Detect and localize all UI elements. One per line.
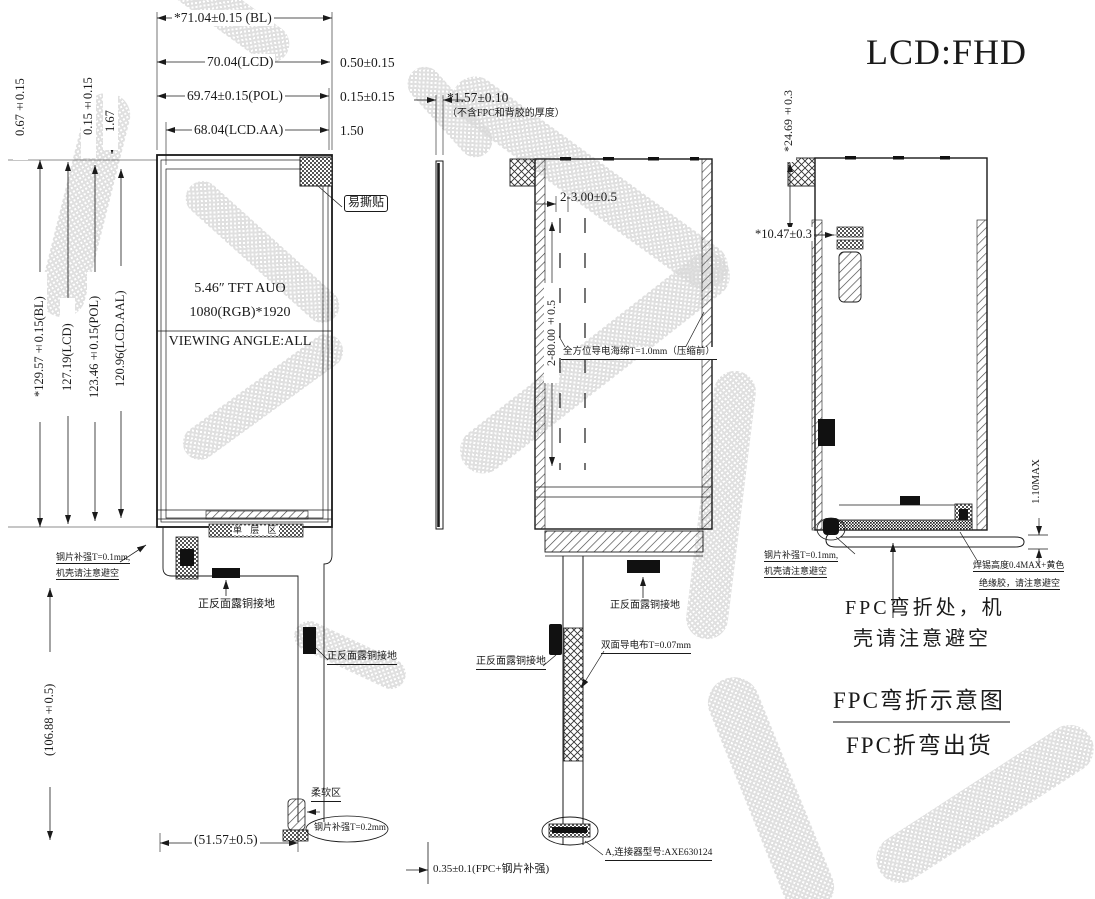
dim-pol-width: 69.74±0.15(POL) <box>185 88 285 104</box>
dim-lcd-height: 127.19(LCD) <box>60 298 75 416</box>
dim-left-offset-1: 0.67±0.15 <box>13 55 28 160</box>
copper-ground-left-label: 正反面露铜接地 <box>476 656 546 670</box>
steel-02-label: 钢片补强T=0.2mm <box>314 822 386 832</box>
soft-area-label: 柔软区 <box>311 788 341 802</box>
panel-spec-line3: VIEWING ANGLE:ALL <box>160 334 320 350</box>
sponge-label: 全方位导电海绵T=1.0mm（压缩前） <box>561 347 717 360</box>
dim-aa-height: 120.96(LCD.AAL) <box>113 266 128 411</box>
peel-sticker-label: 易撕贴 <box>344 195 388 212</box>
dim-bl-height: *129.57±0.15(BL) <box>32 272 47 422</box>
bend-steel-note-line2: 机壳请注意避空 <box>764 566 827 578</box>
dim-fpc-length: (106.88±0.5) <box>42 652 57 787</box>
bend-steel-note-line1: 钢片补强T=0.1mm, <box>764 550 838 562</box>
drawing-geometry <box>0 0 1095 899</box>
steel-note-line2: 机壳请注意避空 <box>56 568 119 580</box>
dim-bl-width: *71.04±0.15 (BL) <box>172 10 274 26</box>
dim-offset-pol: 0.15±0.15 <box>340 89 395 105</box>
dim-thickness-note: （不含FPC和背胶的厚度） <box>447 108 565 120</box>
side-view <box>414 95 465 529</box>
bend-warning-line2: 壳请注意避空 <box>853 628 991 651</box>
dim-fpc-stack: 0.35±0.1(FPC+钢片补强) <box>433 863 549 876</box>
panel-spec-line1: 5.46″ TFT AUO <box>160 281 320 297</box>
dim-left-offset-3: 1.67 <box>103 92 118 150</box>
copper-ground-tail-label: 正反面露铜接地 <box>327 651 397 665</box>
dim-sponge-width: 2-3.00±0.5 <box>560 190 617 205</box>
front-view <box>8 12 388 852</box>
dim-offset-aa: 1.50 <box>340 123 364 139</box>
dim-bend-height: *24.69±0.3 <box>781 80 796 162</box>
dim-fpc-width: (51.57±0.5) <box>192 832 260 848</box>
solder-note-line1: 焊锡高度0.4MAX+黄色 <box>973 560 1064 572</box>
dim-offset-lcd: 0.50±0.15 <box>340 55 395 71</box>
connector-label: A,连接器型号:AXE630124 <box>605 848 712 861</box>
dim-aa-width: 68.04(LCD.AA) <box>192 122 285 138</box>
drawing-canvas: *71.04±0.15 (BL) 70.04(LCD) 0.50±0.15 69… <box>0 0 1095 899</box>
bend-caption-title: FPC弯折示意图 <box>833 688 1005 714</box>
single-layer-label: 单 层 区 <box>233 525 280 535</box>
dim-left-offset-2: 0.15±0.15 <box>81 55 96 158</box>
dim-lcd-width: 70.04(LCD) <box>205 54 275 70</box>
sheet-title: LCD:FHD <box>866 32 1027 73</box>
steel-note-line1: 钢片补强T=0.1mm, <box>56 552 130 564</box>
dim-sponge-length: 2-80.00±0.5 <box>544 283 559 383</box>
solder-note-line2: 绝缘胶，请注意避空 <box>979 578 1060 590</box>
back-view <box>406 157 712 884</box>
copper-ground-right-label: 正反面露铜接地 <box>610 600 680 612</box>
conductive-tape-label: 双面导电布T=0.07mm <box>601 641 691 654</box>
dim-thickness: *1.57±0.10 <box>447 90 508 106</box>
bend-warning-line1: FPC弯折处，机 <box>845 597 1005 620</box>
copper-ground-top-label: 正反面露铜接地 <box>198 598 275 611</box>
dim-110max: 1.10MAX <box>1030 446 1042 518</box>
panel-spec-line2: 1080(RGB)*1920 <box>160 305 320 321</box>
dim-pol-height: 123.46±0.15(POL) <box>87 272 102 422</box>
bend-caption-sub: FPC折弯出货 <box>846 733 993 759</box>
dim-fold: *10.47±0.3 <box>753 227 814 241</box>
